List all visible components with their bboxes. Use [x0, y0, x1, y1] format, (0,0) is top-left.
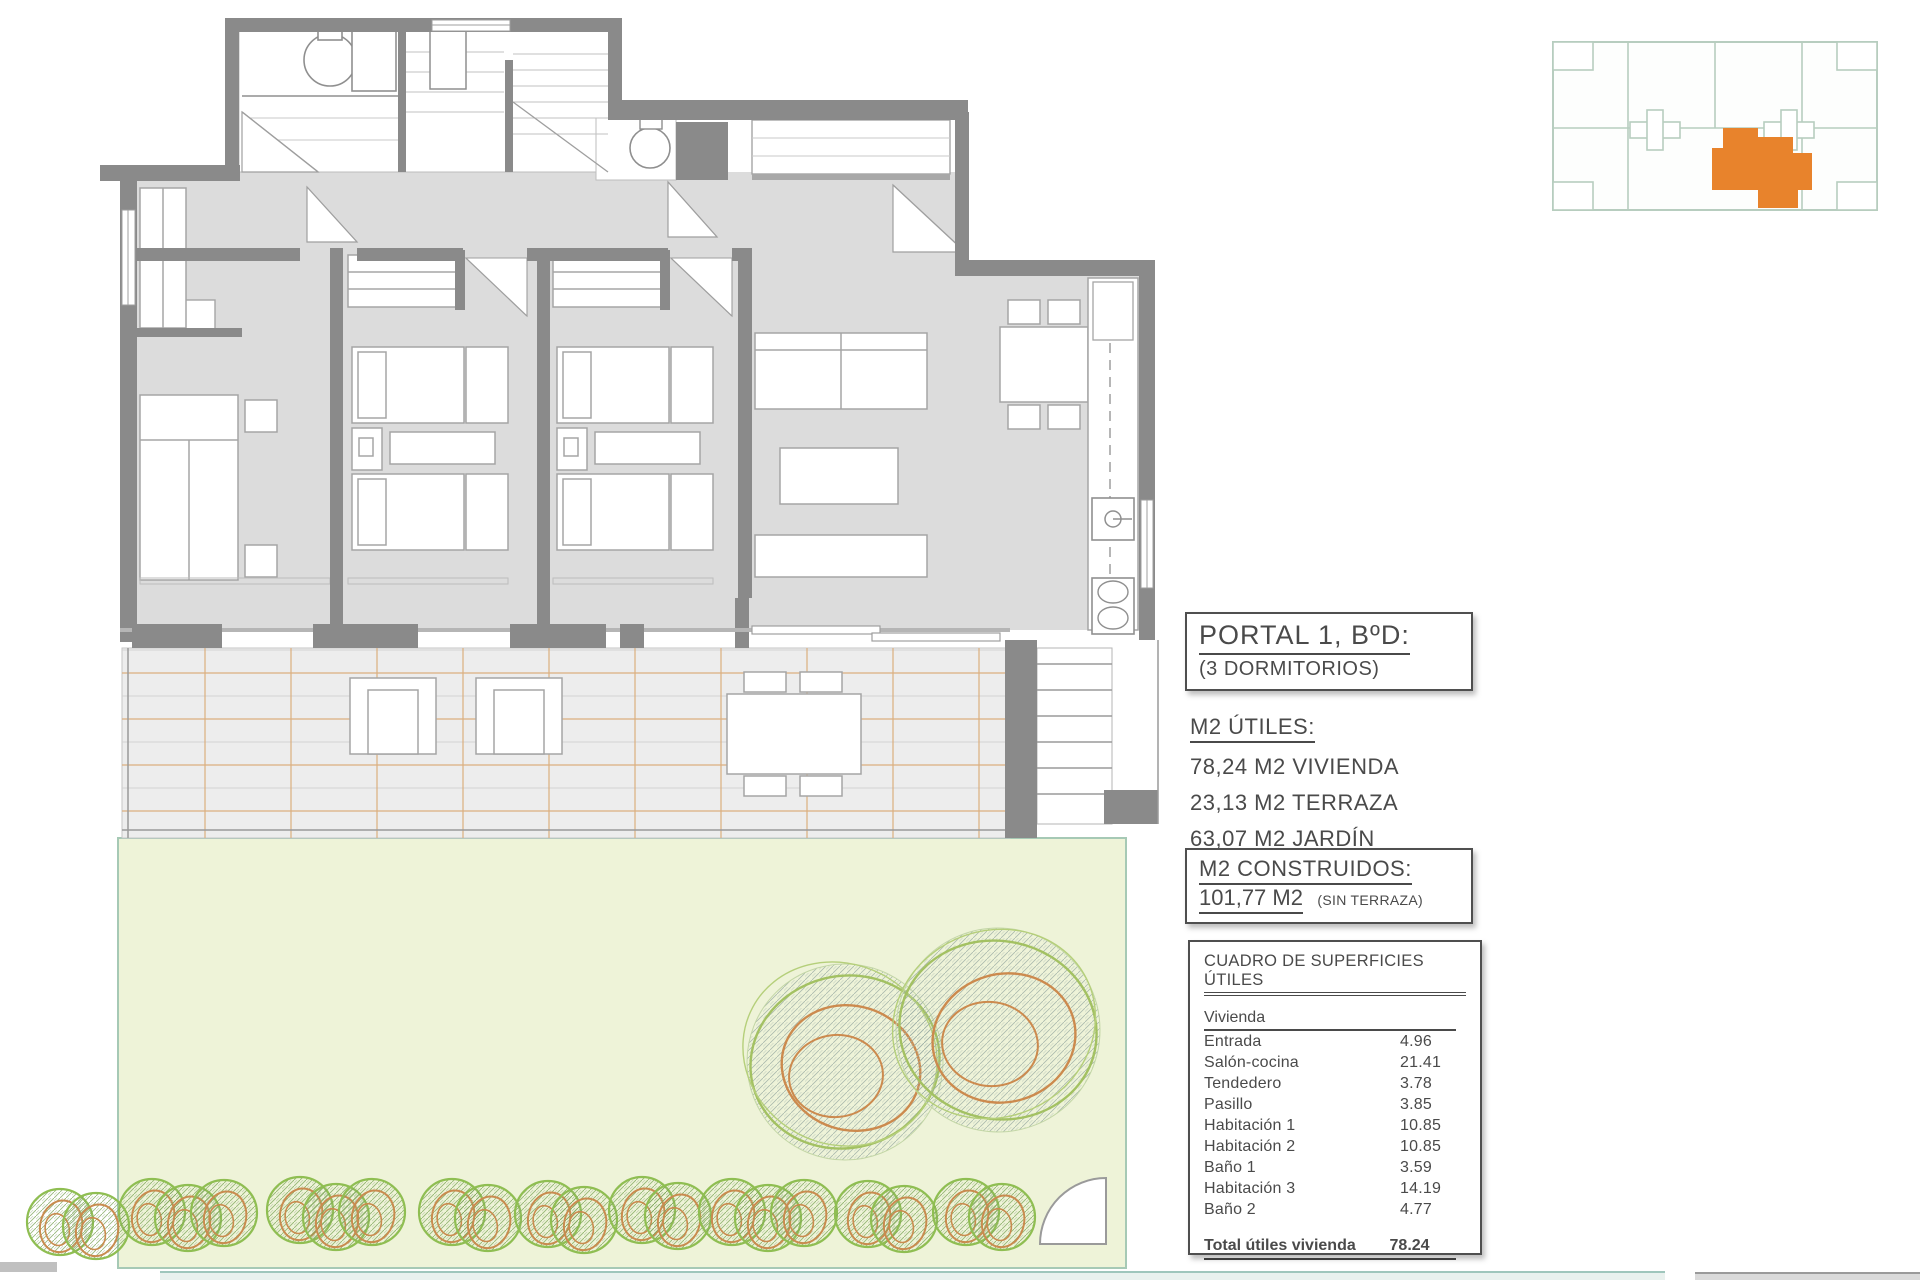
- portal-subtitle: (3 DORMITORIOS): [1199, 658, 1459, 681]
- surfaces-table-box: CUADRO DE SUPERFICIES ÚTILES Vivienda En…: [1188, 940, 1482, 1255]
- m2-construidos-heading: M2 CONSTRUIDOS:: [1199, 856, 1412, 885]
- table-row: Tendedero 3.78: [1204, 1073, 1466, 1094]
- exterior-stairs: [1005, 640, 1158, 838]
- table-row: Baño 2 4.77: [1204, 1199, 1466, 1220]
- m2-utiles-block: M2 ÚTILES: 78,24 M2 VIVIENDA 23,13 M2 TE…: [1190, 714, 1490, 857]
- m2-utiles-heading: M2 ÚTILES:: [1190, 714, 1315, 743]
- table-row: Habitación 1 10.85: [1204, 1115, 1466, 1136]
- m2-construidos-value: 101,77 M2: [1199, 885, 1303, 914]
- m2-construidos-note: (SIN TERRAZA): [1317, 892, 1423, 908]
- table-row: Baño 1 3.59: [1204, 1157, 1466, 1178]
- portal-title: PORTAL 1, BºD:: [1199, 620, 1410, 655]
- m2-utiles-vivienda: 78,24 M2 VIVIENDA: [1190, 749, 1490, 785]
- table-row: Habitación 3 14.19: [1204, 1178, 1466, 1199]
- garden: [27, 838, 1126, 1268]
- portal-label-box: PORTAL 1, BºD: (3 DORMITORIOS): [1185, 612, 1473, 691]
- floorplan-page: PORTAL 1, BºD: (3 DORMITORIOS) M2 ÚTILES…: [0, 0, 1920, 1280]
- table-row: Pasillo 3.85: [1204, 1094, 1466, 1115]
- surfaces-table-title: CUADRO DE SUPERFICIES ÚTILES: [1204, 952, 1466, 996]
- kitchen: [1088, 278, 1138, 634]
- table-row: Habitación 2 10.85: [1204, 1136, 1466, 1157]
- surfaces-table-section: Vivienda: [1204, 1009, 1456, 1031]
- floor-plan-drawing: [0, 0, 1920, 1280]
- table-row: Entrada 4.96: [1204, 1031, 1466, 1052]
- m2-utiles-terraza: 23,13 M2 TERRAZA: [1190, 785, 1490, 821]
- m2-construidos-box: M2 CONSTRUIDOS: 101,77 M2 (SIN TERRAZA): [1185, 848, 1473, 924]
- table-row: Salón-cocina 21.41: [1204, 1052, 1466, 1073]
- table-total-row: Total útiles vivienda 78.24: [1204, 1237, 1456, 1260]
- terrace: [122, 640, 1158, 838]
- key-plan: [1553, 42, 1877, 210]
- apartment: [100, 18, 1155, 648]
